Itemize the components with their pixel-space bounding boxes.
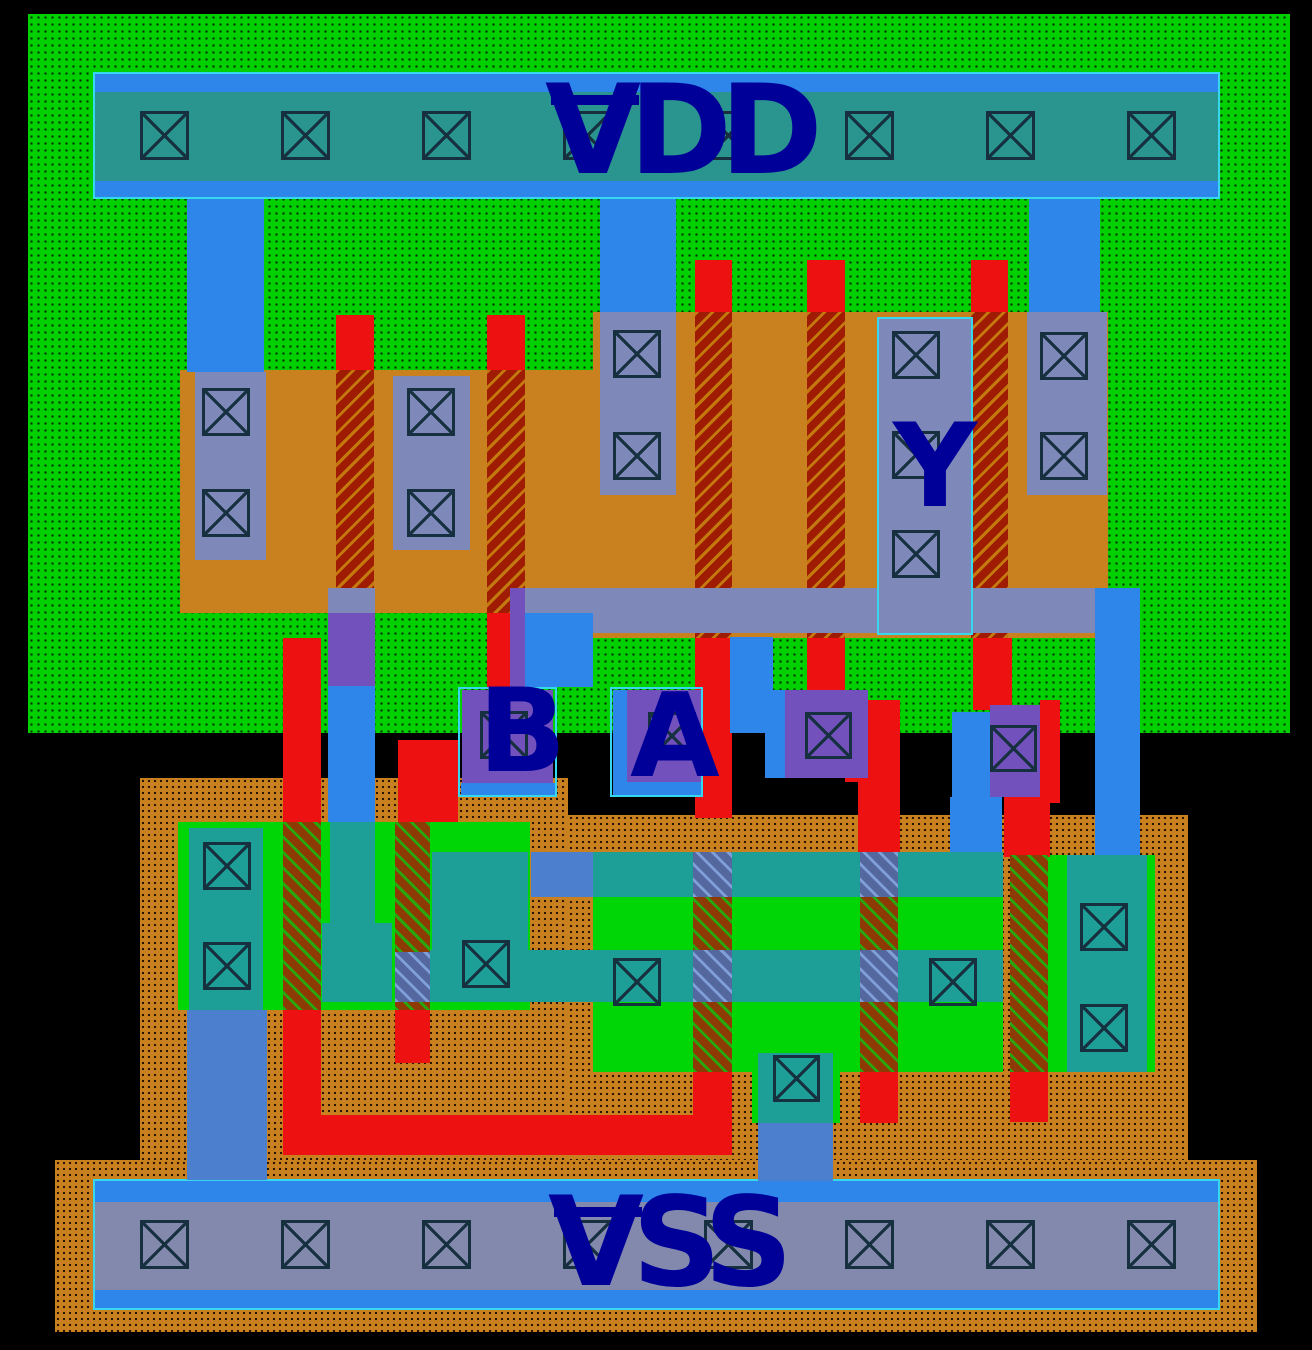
poly4-top[interactable]	[807, 260, 845, 314]
contact3-metal-left[interactable]	[765, 690, 785, 778]
contact-via[interactable]	[202, 388, 250, 436]
poly5-down[interactable]	[1004, 787, 1050, 857]
nmos-band1-x1[interactable]	[693, 852, 732, 897]
poly5-mid[interactable]	[973, 638, 1012, 710]
vdd-strap-right[interactable]	[1029, 199, 1100, 313]
contact-via[interactable]	[773, 1055, 820, 1102]
contact-via[interactable]	[422, 111, 471, 160]
nmos-band1-x2[interactable]	[860, 852, 898, 897]
contact-via[interactable]	[203, 942, 251, 990]
output-mid-bar[interactable]	[510, 588, 1100, 633]
ic-layout-canvas: VDD VSS B A Y	[0, 0, 1312, 1350]
nmos-band1-b[interactable]	[732, 852, 860, 897]
contact-via[interactable]	[613, 330, 661, 378]
nmos-teal-3[interactable]	[322, 923, 392, 1002]
nmos-band1-a[interactable]	[593, 852, 693, 897]
contact-via[interactable]	[1080, 1004, 1128, 1052]
contact-via[interactable]	[407, 388, 455, 436]
poly5-low[interactable]	[1010, 1072, 1048, 1122]
nmos-band2-x0[interactable]	[395, 952, 430, 1002]
vdd-strap-left[interactable]	[187, 199, 264, 372]
bcol-drain-metal[interactable]	[330, 822, 375, 932]
poly3-low[interactable]	[693, 1072, 732, 1119]
vdd-strap-mid[interactable]	[600, 199, 676, 313]
contact-via[interactable]	[613, 958, 661, 1006]
contact-via[interactable]	[1040, 432, 1088, 480]
contact-via[interactable]	[990, 725, 1037, 772]
contact-via[interactable]	[203, 842, 251, 890]
contact-via[interactable]	[140, 111, 189, 160]
poly1-top[interactable]	[336, 315, 374, 372]
contact-via[interactable]	[1080, 903, 1128, 951]
contact-via[interactable]	[986, 111, 1035, 160]
poly4-down[interactable]	[858, 778, 900, 854]
vss-label-overbar	[554, 1207, 642, 1217]
contact-via[interactable]	[140, 1220, 189, 1269]
nmos-gate-5[interactable]	[1010, 855, 1048, 1072]
nmos-band2-x1[interactable]	[693, 950, 732, 1002]
contact-via[interactable]	[462, 940, 510, 988]
contact-via[interactable]	[805, 712, 852, 759]
contact-via[interactable]	[281, 1220, 330, 1269]
bcol-over-poly[interactable]	[328, 613, 375, 686]
poly3-top[interactable]	[695, 260, 732, 314]
output-y-port-label[interactable]: Y	[893, 409, 977, 525]
contact-via[interactable]	[1040, 332, 1088, 380]
nmos-band2-x2[interactable]	[860, 950, 898, 1002]
contact-via[interactable]	[845, 1220, 894, 1269]
bcol-metal[interactable]	[328, 686, 375, 822]
contact-via[interactable]	[845, 111, 894, 160]
polyB-stub[interactable]	[398, 740, 458, 822]
vss-strap-left[interactable]	[187, 1010, 267, 1180]
polyB-left[interactable]	[283, 638, 321, 822]
contact-via[interactable]	[422, 1220, 471, 1269]
y-output-strap[interactable]	[1095, 588, 1140, 858]
nmos-gate-1[interactable]	[283, 822, 321, 1010]
contact-via[interactable]	[929, 958, 977, 1006]
poly4-low[interactable]	[860, 1072, 898, 1123]
poly-bottom-bar[interactable]	[283, 1115, 732, 1155]
vdd-port-label[interactable]: VDD	[545, 69, 811, 193]
nmos-band1-left[interactable]	[531, 852, 593, 897]
pmos-gate-1[interactable]	[336, 370, 374, 613]
polyB-left-low[interactable]	[283, 1010, 321, 1120]
contact4-strap[interactable]	[950, 797, 1002, 854]
input-a-port-label[interactable]: A	[630, 679, 720, 795]
output-mid-bar-left[interactable]	[328, 588, 375, 613]
vdd-label-overbar	[551, 95, 639, 105]
contact-via[interactable]	[281, 111, 330, 160]
nmos-band2-b[interactable]	[732, 950, 860, 1002]
poly2-top[interactable]	[487, 315, 525, 372]
pmos-gate-2[interactable]	[487, 370, 525, 613]
vss-port-label[interactable]: VSS	[548, 1181, 781, 1305]
poly5-top[interactable]	[971, 260, 1008, 314]
input-b-port-label[interactable]: B	[478, 674, 566, 790]
contact-via[interactable]	[1127, 111, 1176, 160]
contact-via[interactable]	[613, 432, 661, 480]
contact-via[interactable]	[407, 489, 455, 537]
contact-via[interactable]	[202, 489, 250, 537]
contact4-metal-left[interactable]	[952, 712, 990, 797]
nmos-band1-c[interactable]	[898, 852, 1003, 897]
polyB2-low[interactable]	[395, 1010, 430, 1063]
contact-via[interactable]	[1127, 1220, 1176, 1269]
contact-via[interactable]	[986, 1220, 1035, 1269]
